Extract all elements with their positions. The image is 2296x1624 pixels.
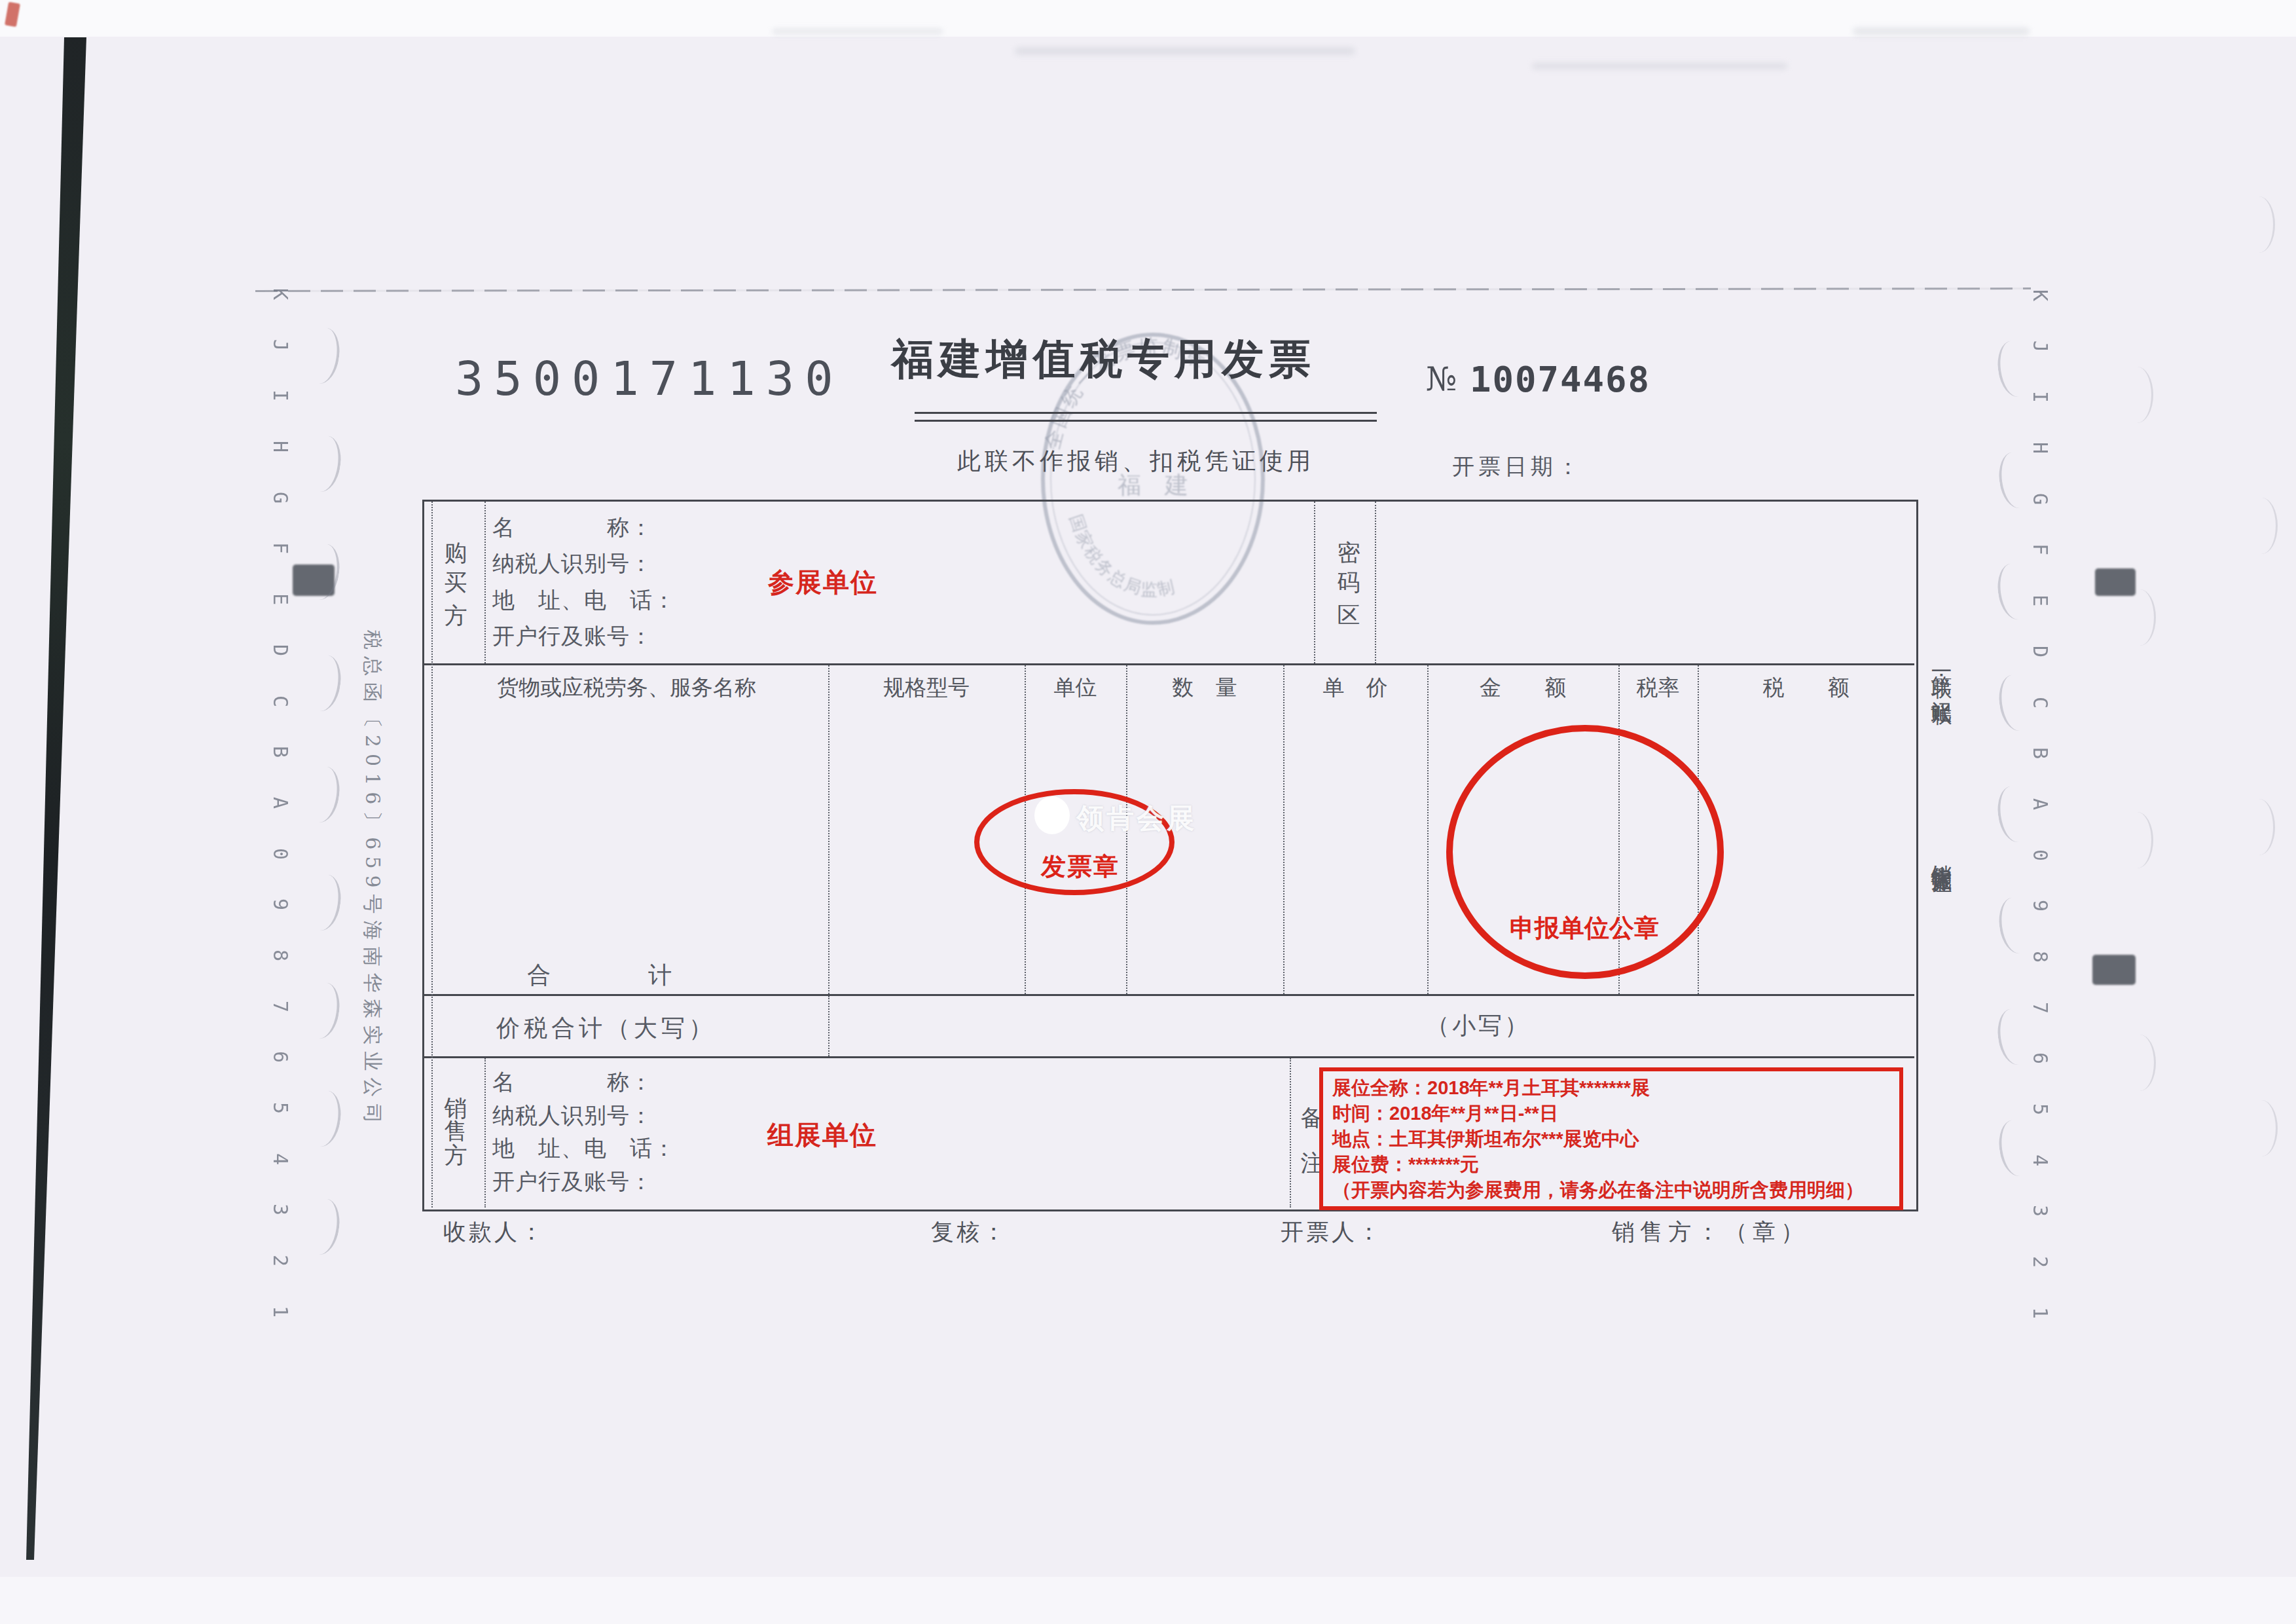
edge-mark: I	[269, 381, 291, 410]
edge-mark: 2	[269, 1246, 291, 1275]
remark-line: 展位全称：2018年**月土耳其*******展	[1332, 1075, 1890, 1100]
remark-line: （开票内容若为参展费用，请务必在备注中说明所含费用明细）	[1332, 1177, 1890, 1202]
seller-side-label: 销售方	[440, 1079, 471, 1146]
rule-password-right	[1375, 502, 1376, 663]
remark-line: 展位费：*******元	[1332, 1152, 1890, 1177]
invoice-stamp-label: 发票章	[1011, 850, 1149, 883]
ink-smudge	[2092, 955, 2136, 985]
edge-mark: 1	[2029, 1299, 2051, 1327]
perforation-arc	[2121, 367, 2153, 423]
edge-mark: K	[2029, 281, 2051, 310]
perforation-arc	[2246, 1100, 2278, 1156]
buyer-field-label: 名 称：	[492, 513, 689, 543]
edge-mark: 3	[2029, 1196, 2051, 1225]
edge-mark: 8	[2029, 942, 2051, 971]
col-header-name: 货物或应税劳务、服务名称	[427, 673, 826, 703]
buyer-field-label: 开户行及账号：	[492, 621, 689, 652]
scan-streak	[1532, 63, 1787, 69]
title-underline-bottom	[915, 420, 1377, 422]
col-header-taxrate: 税率	[1618, 673, 1698, 703]
perforation-arc	[2243, 196, 2275, 253]
col-header-taxamount: 税 额	[1698, 673, 1914, 703]
perforation-arc	[304, 872, 344, 932]
remark-line: 地点：土耳其伊斯坦布尔***展览中心	[1332, 1126, 1890, 1151]
remark-line: 时间：2018年**月**日-**日	[1332, 1101, 1890, 1126]
col-header-amount: 金 额	[1427, 673, 1618, 703]
buyer-field-label: 纳税人识别号：	[492, 549, 689, 579]
edge-marks-right: KJIHGFEDCBA0987654321	[2026, 284, 2054, 1324]
edge-mark: 1	[269, 1297, 291, 1326]
rule-col-price	[1283, 665, 1285, 994]
tax-total-small-label: （小写）	[1426, 1010, 1531, 1042]
scan-streak	[1853, 28, 2030, 35]
col-header-unit: 单位	[1025, 673, 1126, 703]
buyer-side-label: 购买方	[440, 524, 471, 614]
invoice-number-symbol: №	[1426, 360, 1457, 398]
edge-mark: 7	[2029, 993, 2051, 1022]
edge-mark: D	[269, 636, 291, 665]
edge-mark: 6	[269, 1043, 291, 1071]
edge-mark: 7	[269, 992, 291, 1021]
edge-mark: 5	[269, 1094, 291, 1122]
review-label: 复核：	[931, 1217, 1008, 1247]
edge-mark: B	[2029, 739, 2051, 767]
invoice-number: 10074468	[1470, 359, 1650, 400]
seller-field-label: 地 址、电 话：	[492, 1134, 689, 1164]
perforation-arc	[2246, 498, 2278, 554]
edge-mark: G	[269, 483, 291, 512]
perforation-arc	[2121, 812, 2153, 868]
edge-mark: H	[2029, 434, 2051, 462]
scan-streak	[773, 29, 943, 34]
total-row-label: 合 计	[527, 959, 672, 991]
invoice-date-label: 开票日期：	[1452, 452, 1583, 482]
edge-mark: 9	[2029, 891, 2051, 920]
perforation-arc	[304, 434, 344, 494]
paper-top-edge	[255, 287, 2031, 292]
edge-mark: J	[2029, 332, 2051, 361]
edge-mark: F	[269, 534, 291, 563]
perforation-arc	[302, 325, 342, 386]
edge-mark: 3	[269, 1195, 291, 1224]
rule-taxrow-bottom	[424, 1056, 1914, 1058]
rule-password-left	[1314, 502, 1315, 663]
edge-mark: E	[269, 585, 291, 614]
edge-mark: G	[2029, 485, 2051, 513]
watermark-text: 领肯会展	[1076, 800, 1197, 837]
rule-remark-left	[1290, 1058, 1291, 1208]
seller-annotation: 组展单位	[767, 1117, 877, 1153]
title-underline-top	[915, 412, 1377, 414]
col-header-spec: 规格型号	[828, 673, 1025, 703]
edge-mark: A	[2029, 790, 2051, 819]
edge-mark: 9	[269, 890, 291, 919]
ink-smudge	[2095, 568, 2136, 596]
edge-mark: 6	[2029, 1044, 2051, 1073]
buyer-field-label: 地 址、电 话：	[492, 585, 689, 616]
invoice-subtitle: 此联不作报销、扣税凭证使用	[957, 445, 1315, 477]
declare-stamp-label: 申报单位公章	[1499, 912, 1669, 945]
edge-mark: 0	[2029, 841, 2051, 870]
rule-buyer-side	[484, 502, 486, 663]
perforation-arc	[2124, 589, 2156, 646]
col-header-qty: 数 量	[1126, 673, 1283, 703]
edge-mark: J	[269, 331, 291, 360]
seller-field-label: 名 称：	[492, 1067, 689, 1098]
invoice-code: 3500171130	[455, 351, 843, 406]
payee-label: 收款人：	[443, 1217, 545, 1247]
seller-field-label: 开户行及账号：	[492, 1167, 689, 1197]
edge-mark: A	[269, 788, 291, 817]
rule-seller-side	[484, 1058, 486, 1208]
perforation-arc	[304, 653, 344, 713]
left-vertical-note: 税总函〔2016〕659号海南华森实业公司	[359, 630, 386, 1167]
perforation-arc	[304, 1088, 344, 1149]
edge-mark: C	[2029, 688, 2051, 717]
edge-mark: 4	[269, 1145, 291, 1173]
perforation-arc	[302, 980, 342, 1041]
rule-items-bottom	[424, 994, 1914, 996]
edge-mark: I	[2029, 382, 2051, 411]
edge-mark: 0	[269, 840, 291, 868]
col-header-price: 单 价	[1283, 673, 1427, 703]
seller-seal-label: 销售方：（章）	[1612, 1217, 1809, 1247]
edge-mark: C	[269, 687, 291, 716]
edge-marks-left: KJIHGFEDCBA0987654321	[266, 283, 295, 1323]
tax-total-label: 价税合计（大写）	[496, 1012, 716, 1044]
seller-field-label: 纳税人识别号：	[492, 1101, 689, 1131]
buyer-fields: 名 称：纳税人识别号：地 址、电 话：开户行及账号：	[492, 509, 689, 655]
rule-col-spec	[828, 665, 829, 994]
edge-mark: 5	[2029, 1095, 2051, 1124]
buyer-annotation: 参展单位	[768, 564, 878, 600]
rule-buyer-bottom	[424, 663, 1914, 665]
invoice-title: 福建增值税专用发票	[892, 331, 1316, 388]
edge-mark: H	[269, 432, 291, 461]
perforation-arc	[302, 1196, 342, 1257]
edge-mark: D	[2029, 637, 2051, 666]
watermark-logo	[1034, 796, 1070, 834]
rule-inner-left	[431, 502, 433, 1208]
edge-mark: 2	[2029, 1247, 2051, 1276]
edge-mark: K	[269, 280, 291, 308]
rule-taxrow-divider	[828, 996, 829, 1056]
drawer-label: 开票人：	[1281, 1217, 1383, 1247]
rule-col-amount	[1427, 665, 1429, 994]
perforation-arc	[2243, 799, 2275, 855]
edge-mark: E	[2029, 586, 2051, 615]
perforation-arc	[2124, 1035, 2156, 1091]
scan-bottom-band	[0, 1577, 2296, 1624]
remarks-annotation-box: 展位全称：2018年**月土耳其*******展时间：2018年**月**日-*…	[1319, 1067, 1903, 1210]
copy-note-line1: 第一联：记账联	[1927, 659, 1956, 689]
scan-black-strip	[0, 0, 105, 1565]
edge-mark: B	[269, 737, 291, 766]
password-area-label: 密码区	[1333, 521, 1364, 619]
scan-streak	[1015, 47, 1355, 55]
scanned-invoice-page: KJIHGFEDCBA0987654321 KJIHGFEDCBA0987654…	[0, 0, 2296, 1624]
perforation-arc	[302, 764, 342, 824]
edge-mark: F	[2029, 535, 2051, 564]
edge-mark: 8	[269, 941, 291, 970]
copy-note-line2: 销售方记账凭证	[1927, 849, 1956, 858]
seller-fields: 名 称：纳税人识别号：地 址、电 话：开户行及账号：	[492, 1066, 689, 1198]
edge-mark: 4	[2029, 1146, 2051, 1175]
